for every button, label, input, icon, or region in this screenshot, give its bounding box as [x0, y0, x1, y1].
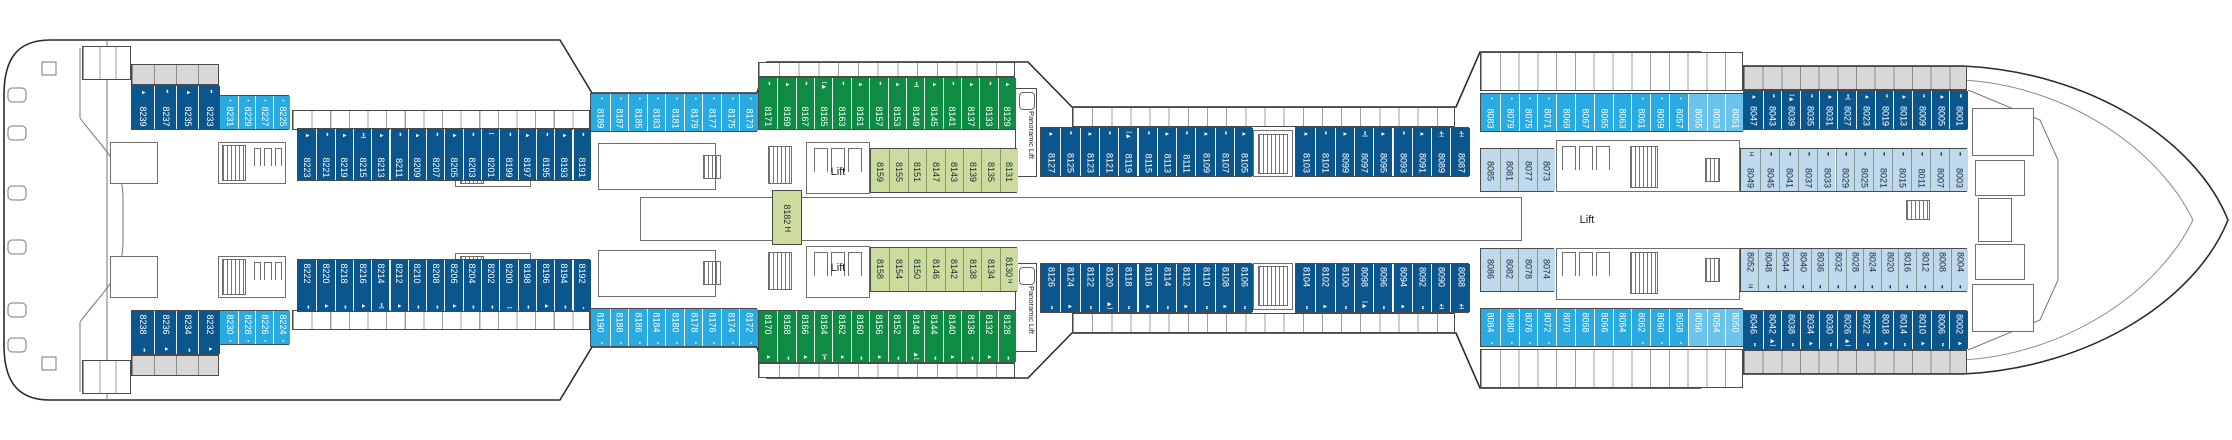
cabin-8219[interactable]: ▲8219 — [335, 129, 353, 180]
cabin-8108[interactable]: 8108▲ — [1215, 264, 1234, 312]
cabin-8166[interactable]: 8166▲ — [796, 311, 814, 362]
berth-marker: •• — [163, 89, 169, 92]
cabin-8228[interactable]: 8228• — [238, 311, 256, 344]
cabin-number: 8229 — [242, 106, 251, 126]
cabin-8091[interactable]: ▲8091 — [1412, 128, 1431, 176]
cabin-8177[interactable]: •8177 — [702, 94, 721, 131]
cabin-number: 8225 — [277, 106, 286, 126]
cabin-8078[interactable]: 8078 — [1518, 249, 1537, 291]
cabin-8231[interactable]: •8231 — [220, 96, 238, 129]
cabin-8058[interactable]: 8058• — [1669, 309, 1688, 346]
cabin-8179[interactable]: •8179 — [684, 94, 703, 131]
berth-marker: ▲ — [1826, 94, 1832, 99]
cabin-band-top-green: ••8171▲8169••8167I▲8165••8163▲8161••8157… — [758, 77, 1015, 130]
cabin-8079[interactable]: •8079 — [1500, 94, 1519, 131]
cabin-8200[interactable]: 8200I — [499, 260, 517, 311]
cabin-8190[interactable]: 8190• — [591, 309, 610, 346]
cabin-8128[interactable]: 8128•• — [998, 311, 1016, 362]
cabin-8119[interactable]: I▲8119 — [1118, 128, 1137, 176]
cabin-number: 8188 — [615, 312, 624, 332]
cabin-8008[interactable]: 8008▪▪ — [1933, 249, 1950, 291]
cabin-8204[interactable]: 8204•• — [463, 260, 481, 311]
cabin-8198[interactable]: 8198•• — [518, 260, 536, 311]
cabin-8039[interactable]: I▲8039 — [1781, 91, 1800, 129]
cabin-8068[interactable]: 8068 — [1575, 309, 1594, 346]
cabin-8189[interactable]: •8189 — [591, 94, 610, 131]
cabin-8157[interactable]: ••8157 — [869, 78, 887, 129]
cabin-8028[interactable]: 8028▪▪ — [1846, 249, 1863, 291]
berth-marker: • — [1507, 341, 1513, 343]
cabin-8024[interactable]: 8024▪▪ — [1863, 249, 1880, 291]
cabin-8040[interactable]: 8040▪▪ — [1793, 249, 1810, 291]
cabin-8178[interactable]: 8178• — [684, 309, 703, 346]
cabin-8151[interactable]: 8151 — [908, 149, 926, 192]
cabin-8114[interactable]: 8114•• — [1157, 264, 1176, 312]
cabin-8071[interactable]: •8071 — [1537, 94, 1556, 131]
cabin-8093[interactable]: ••8093 — [1393, 128, 1412, 176]
cabin-8055[interactable]: 8055 — [1688, 94, 1707, 131]
cabin-8125[interactable]: ••8125 — [1060, 128, 1079, 176]
cabin-8036[interactable]: 8036▪▪ — [1811, 249, 1828, 291]
cabin-8063[interactable]: 8063 — [1613, 94, 1632, 131]
cabin-8097[interactable]: ••I8097 — [1354, 128, 1373, 176]
cabin-8077[interactable]: 8077 — [1518, 149, 1537, 191]
cabin-8059[interactable]: •8059 — [1650, 94, 1669, 131]
cabin-8102[interactable]: 8102▲ — [1315, 264, 1334, 312]
cabin-8164[interactable]: 8164I•• — [814, 311, 832, 362]
cabin-8014[interactable]: 8014•• — [1893, 311, 1912, 349]
cabin-8011[interactable]: ▪▪8011 — [1911, 149, 1930, 191]
cabin-number: 8016 — [1903, 252, 1912, 272]
berth-marker: ▪▪ — [1887, 285, 1893, 288]
cabin-8054[interactable]: 8054 — [1707, 309, 1726, 346]
cabin-8065[interactable]: 8065 — [1594, 94, 1613, 131]
cabin-8051[interactable]: 8051 — [1725, 94, 1744, 131]
deck-plan: Panoramic LiftPanoramic Lift ▲8239••8237… — [0, 0, 2232, 440]
cabin-8042[interactable]: 8042▲I — [1763, 311, 1782, 349]
berth-marker: • — [1525, 341, 1531, 343]
cabin-8080[interactable]: 8080• — [1500, 309, 1519, 346]
cabin-number: 8107 — [1220, 153, 1229, 173]
cabin-8109[interactable]: ▲8109 — [1195, 128, 1214, 176]
cabin-8208[interactable]: 8208•• — [426, 260, 444, 311]
cabin-8222[interactable]: 8222•• — [298, 260, 316, 311]
berth-marker: ▪▪ — [1842, 152, 1848, 155]
cabin-8182[interactable]: 8182H — [772, 190, 802, 245]
berth-marker: •• — [488, 305, 494, 308]
cabin-8107[interactable]: ••8107 — [1215, 128, 1234, 176]
cabin-8067[interactable]: 8067 — [1575, 94, 1594, 131]
cabin-8124[interactable]: 8124▲ — [1060, 264, 1079, 312]
cabin-8156[interactable]: 8156▲ — [869, 311, 887, 362]
cabin-8099[interactable]: ▲8099 — [1335, 128, 1354, 176]
cabin-8001[interactable]: ••8001 — [1949, 91, 1968, 129]
cabin-number: 8091 — [1417, 153, 1426, 173]
cabin-8210[interactable]: 8210•• — [408, 260, 426, 311]
cabin-8201[interactable]: I8201 — [481, 129, 499, 180]
cabin-8138[interactable]: 8138 — [963, 248, 981, 291]
cabin-8211[interactable]: ••8211 — [390, 129, 408, 180]
cabin-8074[interactable]: 8074 — [1537, 249, 1556, 291]
cabin-8215[interactable]: ••I8215 — [353, 129, 371, 180]
cabin-8167[interactable]: ••8167 — [796, 78, 814, 129]
berth-marker: ▪H — [1438, 304, 1444, 309]
cabin-number: 8216 — [358, 263, 367, 283]
cabin-8005[interactable]: ▲8005 — [1931, 91, 1950, 129]
cabin-8176[interactable]: 8176• — [702, 309, 721, 346]
cabin-8015[interactable]: ▪▪8015 — [1892, 149, 1911, 191]
cabin-8162[interactable]: 8162▲ — [832, 311, 850, 362]
cabin-8146[interactable]: 8146 — [926, 248, 944, 291]
cabin-8052[interactable]: 8052H — [1741, 249, 1758, 291]
cabin-8214[interactable]: 8214••I — [371, 260, 389, 311]
cabin-8199[interactable]: ••8199 — [499, 129, 517, 180]
cabin-8239[interactable]: ▲8239 — [132, 86, 154, 129]
cabin-8170[interactable]: 8170▲ — [759, 311, 777, 362]
cabin-number: 8176 — [708, 312, 717, 332]
cabin-number: 8022 — [1861, 314, 1870, 334]
cabin-number: 8178 — [689, 312, 698, 332]
cabin-8013[interactable]: ▲8013 — [1893, 91, 1912, 129]
cabin-8155[interactable]: 8155 — [889, 149, 907, 192]
cabin-8104[interactable]: 8104•• — [1296, 264, 1315, 312]
cabin-8165[interactable]: I▲8165 — [814, 78, 832, 129]
cabin-8106[interactable]: 8106•• — [1234, 264, 1253, 312]
cabin-8111[interactable]: ••8111 — [1176, 128, 1195, 176]
cabin-8147[interactable]: 8147 — [926, 149, 944, 192]
cabin-8090[interactable]: 8090▪H — [1431, 264, 1450, 312]
cabin-8132[interactable]: 8132▲ — [979, 311, 997, 362]
cabin-8110[interactable]: 8110•• — [1195, 264, 1214, 312]
cabin-8018[interactable]: 8018▲ — [1875, 311, 1894, 349]
cabin-8148[interactable]: 8148▲I — [906, 311, 924, 362]
cabin-8072[interactable]: 8072• — [1537, 309, 1556, 346]
cabin-8060[interactable]: 8060• — [1650, 309, 1669, 346]
cabin-8084[interactable]: 8084• — [1481, 309, 1500, 346]
cabin-number: 8082 — [1505, 259, 1514, 279]
cabin-8047[interactable]: ▲8047 — [1744, 91, 1763, 129]
cabin-8149[interactable]: ••I8149 — [906, 78, 924, 129]
cabin-8043[interactable]: ••8043 — [1763, 91, 1782, 129]
cabin-8094[interactable]: 8094▲ — [1393, 264, 1412, 312]
cabin-8136[interactable]: 8136•• — [961, 311, 979, 362]
cabin-8057[interactable]: •8057 — [1669, 94, 1688, 131]
cabin-8056[interactable]: 8056 — [1688, 309, 1707, 346]
cabin-8092[interactable]: 8092•• — [1412, 264, 1431, 312]
cabin-8194[interactable]: 8194•• — [554, 260, 572, 311]
cabin-8066[interactable]: 8066 — [1594, 309, 1613, 346]
cabin-8134[interactable]: 8134 — [981, 248, 999, 291]
cabin-8061[interactable]: •8061 — [1631, 94, 1650, 131]
berth-marker: ▲ — [1164, 131, 1170, 136]
cabin-number: 8223 — [303, 157, 312, 177]
cabin-number: 8072 — [1543, 312, 1552, 332]
cabin-8174[interactable]: 8174• — [721, 309, 740, 346]
cabin-8062[interactable]: 8062• — [1631, 309, 1650, 346]
cabin-8126[interactable]: 8126•• — [1041, 264, 1060, 312]
cabin-band-top-fore-cyan: •8083•8079•8075•80718069806780658063•806… — [1480, 93, 1743, 132]
cabin-number: 8055 — [1693, 108, 1702, 128]
cabin-8100[interactable]: 8100•• — [1335, 264, 1354, 312]
berth-marker: •• — [1183, 131, 1189, 134]
cabin-8192[interactable]: 8192• — [573, 260, 591, 311]
cabin-8236[interactable]: 8236▲ — [154, 311, 176, 354]
cabin-8152[interactable]: 8152•• — [888, 311, 906, 362]
cabin-8076[interactable]: 8076• — [1519, 309, 1538, 346]
cabin-8123[interactable]: ▲8123 — [1080, 128, 1099, 176]
cabin-8184[interactable]: 8184• — [647, 309, 666, 346]
cabin-8045[interactable]: ▪▪8045 — [1760, 149, 1779, 191]
cabin-number: 8026 — [1843, 314, 1852, 334]
cabin-8135[interactable]: 8135 — [981, 149, 999, 192]
cabin-8212[interactable]: 8212▲ — [390, 260, 408, 311]
berth-marker: • — [226, 99, 232, 101]
cabin-number: 8173 — [745, 108, 754, 128]
stairs-icon — [222, 145, 246, 181]
cabin-8037[interactable]: ▪▪8037 — [1798, 149, 1817, 191]
cabin-8112[interactable]: 8112▲ — [1176, 264, 1195, 312]
cabin-8163[interactable]: ••8163 — [832, 78, 850, 129]
cabin-8007[interactable]: ▪▪8007 — [1930, 149, 1949, 191]
cabin-8130[interactable]: 8130H — [1000, 248, 1018, 291]
cabin-8009[interactable]: ••8009 — [1912, 91, 1931, 129]
cabin-8168[interactable]: 8168•• — [777, 311, 795, 362]
berth-marker: ▪▪ — [1904, 285, 1910, 288]
cabin-8127[interactable]: ▲8127 — [1041, 128, 1060, 176]
cabin-8031[interactable]: ▲8031 — [1819, 91, 1838, 129]
cabin-8081[interactable]: 8081 — [1500, 149, 1519, 191]
cabin-8218[interactable]: 8218•• — [335, 260, 353, 311]
cabin-8150[interactable]: 8150 — [908, 248, 926, 291]
cabin-8154[interactable]: 8154 — [889, 248, 907, 291]
cabin-8197[interactable]: ▲8197 — [518, 129, 536, 180]
cabin-8044[interactable]: 8044▪▪ — [1776, 249, 1793, 291]
cabin-8209[interactable]: ▲8209 — [408, 129, 426, 180]
cabin-8086[interactable]: 8086 — [1481, 249, 1500, 291]
cabin-8202[interactable]: 8202•• — [481, 260, 499, 311]
cabin-8118[interactable]: 8118•• — [1118, 264, 1137, 312]
window-strip — [758, 363, 1015, 378]
cabin-8160[interactable]: 8160•• — [851, 311, 869, 362]
cabin-8186[interactable]: 8186• — [628, 309, 647, 346]
cabin-8195[interactable]: ••8195 — [536, 129, 554, 180]
cabin-8049[interactable]: H8049 — [1741, 149, 1760, 191]
berth-marker: ▪▪ — [1918, 152, 1924, 155]
cabin-8181[interactable]: •8181 — [665, 94, 684, 131]
cabin-8113[interactable]: ▲8113 — [1157, 128, 1176, 176]
cabin-8070[interactable]: 8070 — [1556, 309, 1575, 346]
cabin-8046[interactable]: 8046•• — [1744, 311, 1763, 349]
cabin-8203[interactable]: ••8203 — [463, 129, 481, 180]
cabin-8206[interactable]: 8206▲ — [444, 260, 462, 311]
cabin-8133[interactable]: ••8133 — [979, 78, 997, 129]
cabin-number: 8049 — [1746, 168, 1755, 188]
cabin-8098[interactable]: 8098I▲ — [1354, 264, 1373, 312]
cabin-8227[interactable]: •8227 — [255, 96, 273, 129]
berth-marker: •• — [1750, 343, 1756, 346]
cabin-8233[interactable]: ••8233 — [198, 86, 220, 129]
cabin-8064[interactable]: 8064 — [1613, 309, 1632, 346]
cabin-8207[interactable]: ••8207 — [426, 129, 444, 180]
cabin-8191[interactable]: ••8191 — [573, 129, 591, 180]
cabin-8172[interactable]: 8172• — [739, 309, 758, 346]
cabin-8143[interactable]: 8143 — [945, 149, 963, 192]
cabin-8196[interactable]: 8196▲ — [536, 260, 554, 311]
cabin-8171[interactable]: ••8171 — [759, 78, 777, 129]
cabin-8095[interactable]: ▲8095 — [1373, 128, 1392, 176]
cabin-8145[interactable]: ▲8145 — [924, 78, 942, 129]
berth-marker: •• — [1106, 131, 1112, 134]
cabin-8180[interactable]: 8180• — [665, 309, 684, 346]
cabin-8087[interactable]: ▪H8087 — [1450, 128, 1469, 176]
cabin-8129[interactable]: ▲8129 — [998, 78, 1016, 129]
cabin-8105[interactable]: ▲8105 — [1234, 128, 1253, 176]
cabin-8075[interactable]: •8075 — [1519, 94, 1538, 131]
cabin-8225[interactable]: •8225 — [273, 96, 291, 129]
cabin-8116[interactable]: 8116▲ — [1138, 264, 1157, 312]
cabin-8185[interactable]: •8185 — [628, 94, 647, 131]
cabin-8006[interactable]: 8006•• — [1931, 311, 1950, 349]
cabin-8053[interactable]: 8053 — [1707, 94, 1726, 131]
cabin-8187[interactable]: •8187 — [610, 94, 629, 131]
berth-marker: ▪▪ — [1817, 285, 1823, 288]
cabin-8137[interactable]: ▲8137 — [961, 78, 979, 129]
cabin-8032[interactable]: 8032▪▪ — [1828, 249, 1845, 291]
cabin-8120[interactable]: 8120▲I — [1099, 264, 1118, 312]
cabin-8010[interactable]: 8010▲ — [1912, 311, 1931, 349]
cabin-8016[interactable]: 8016▪▪ — [1898, 249, 1915, 291]
cabin-number: 8028 — [1850, 252, 1859, 272]
lift-fore-label: Lift — [1580, 214, 1595, 226]
cabin-8153[interactable]: ▲8153 — [888, 78, 906, 129]
cabin-8034[interactable]: 8034▲ — [1800, 311, 1819, 349]
cabin-8230[interactable]: 8230• — [220, 311, 238, 344]
cabin-8141[interactable]: ••8141 — [943, 78, 961, 129]
cabin-number: 8125 — [1066, 153, 1075, 173]
cabin-8025[interactable]: ▪▪8025 — [1854, 149, 1873, 191]
cabin-8069[interactable]: 8069 — [1556, 94, 1575, 131]
cabin-8224[interactable]: 8224• — [273, 311, 291, 344]
cabin-number: 8150 — [913, 258, 922, 278]
cabin-8021[interactable]: ▪▪8021 — [1873, 149, 1892, 191]
cabin-8103[interactable]: ▲8103 — [1296, 128, 1315, 176]
cabin-8019[interactable]: ••8019 — [1875, 91, 1894, 129]
cabin-8050[interactable]: 8050 — [1725, 309, 1744, 346]
cabin-8002[interactable]: 8002▲ — [1949, 311, 1968, 349]
berth-marker: •• — [1938, 343, 1944, 346]
cabin-8035[interactable]: ••8035 — [1800, 91, 1819, 129]
cabin-8142[interactable]: 8142 — [945, 248, 963, 291]
berth-marker: ▲ — [1322, 304, 1328, 309]
cabin-8213[interactable]: ▲8213 — [371, 129, 389, 180]
cabin-8144[interactable]: 8144•• — [924, 311, 942, 362]
cabin-8140[interactable]: 8140▲ — [943, 311, 961, 362]
berth-marker: •• — [857, 356, 863, 359]
cabin-8139[interactable]: 8139 — [963, 149, 981, 192]
cabin-8173[interactable]: •8173 — [739, 94, 758, 131]
cabin-8188[interactable]: 8188• — [610, 309, 629, 346]
cabin-8048[interactable]: 8048▪▪ — [1758, 249, 1775, 291]
cabin-8003[interactable]: ▪▪8003 — [1949, 149, 1968, 191]
cabin-8033[interactable]: ▪▪8033 — [1817, 149, 1836, 191]
cabin-8131[interactable]: 8131 — [1000, 149, 1018, 192]
berth-marker: I•• — [820, 353, 827, 359]
cabin-8158[interactable]: 8158 — [871, 248, 889, 291]
berth-marker: ▪H — [1438, 131, 1444, 136]
cabin-8226[interactable]: 8226• — [255, 311, 273, 344]
cabin-8073[interactable]: 8073 — [1537, 149, 1556, 191]
cabin-8220[interactable]: 8220▲ — [316, 260, 334, 311]
cabin-number: 8218 — [340, 263, 349, 283]
cabin-number: 8114 — [1162, 267, 1171, 286]
lift-bank-icon — [252, 146, 284, 180]
berth-marker: •• — [1400, 131, 1406, 134]
cabin-8234[interactable]: 8234•• — [176, 311, 198, 354]
cabin-8026[interactable]: 8026▲I — [1837, 311, 1856, 349]
cabin-8022[interactable]: 8022•• — [1856, 311, 1875, 349]
lift-car-icon — [275, 148, 282, 166]
cabin-8038[interactable]: 8038•• — [1781, 311, 1800, 349]
cabin-8237[interactable]: ••8237 — [154, 86, 176, 129]
cabin-8030[interactable]: 8030•• — [1819, 311, 1838, 349]
cabin-8238[interactable]: 8238•• — [132, 311, 154, 354]
cabin-8183[interactable]: •8183 — [647, 94, 666, 131]
cabin-8232[interactable]: 8232▲ — [198, 311, 220, 354]
cabin-8004[interactable]: 8004▪▪ — [1951, 249, 1968, 291]
cabin-number: 8121 — [1105, 153, 1114, 173]
cabin-8096[interactable]: 8096•• — [1373, 264, 1392, 312]
cabin-8216[interactable]: 8216▲ — [353, 260, 371, 311]
cabin-8020[interactable]: 8020▪▪ — [1881, 249, 1898, 291]
cabin-number: 8098 — [1360, 267, 1369, 287]
window-strip — [82, 46, 131, 80]
cabin-8221[interactable]: ••8221 — [316, 129, 334, 180]
cabin-8088[interactable]: 8088▪H — [1450, 264, 1469, 312]
cabin-8235[interactable]: ▲8235 — [176, 86, 198, 129]
berth-marker: • — [691, 97, 697, 99]
cabin-8083[interactable]: •8083 — [1481, 94, 1500, 131]
cabin-8175[interactable]: •8175 — [721, 94, 740, 131]
cabin-number: 8141 — [948, 106, 957, 126]
cabin-8023[interactable]: ▲8023 — [1856, 91, 1875, 129]
cabin-number: 8204 — [468, 263, 477, 283]
cabin-8229[interactable]: •8229 — [238, 96, 256, 129]
cabin-8027[interactable]: ••I8027 — [1837, 91, 1856, 129]
cabin-8101[interactable]: ••8101 — [1315, 128, 1334, 176]
cabin-number: 8138 — [968, 258, 977, 278]
cabin-number: 8077 — [1523, 161, 1532, 181]
cabin-8205[interactable]: ▲8205 — [444, 129, 462, 180]
cabin-8193[interactable]: ▲8193 — [554, 129, 572, 180]
cabin-8223[interactable]: ▲8223 — [298, 129, 316, 180]
cabin-8012[interactable]: 8012▪▪ — [1916, 249, 1933, 291]
cabin-8041[interactable]: ▪▪8041 — [1779, 149, 1798, 191]
cabin-8029[interactable]: ▪▪8029 — [1836, 149, 1855, 191]
cabin-8089[interactable]: ▪H8089 — [1431, 128, 1450, 176]
cabin-8161[interactable]: ▲8161 — [851, 78, 869, 129]
cabin-8159[interactable]: 8159 — [871, 149, 889, 192]
cabin-number: 8084 — [1486, 312, 1495, 332]
cabin-number: 8210 — [413, 263, 422, 283]
cabin-8121[interactable]: ••8121 — [1099, 128, 1118, 176]
cabin-8122[interactable]: 8122•• — [1080, 264, 1099, 312]
berth-marker: ▪▪ — [1782, 285, 1788, 288]
cabin-8169[interactable]: ▲8169 — [777, 78, 795, 129]
cabin-number: 8062 — [1637, 312, 1646, 332]
cabin-8085[interactable]: 8085 — [1481, 149, 1500, 191]
cabin-8115[interactable]: ••8115 — [1138, 128, 1157, 176]
cabin-8082[interactable]: 8082 — [1500, 249, 1519, 291]
